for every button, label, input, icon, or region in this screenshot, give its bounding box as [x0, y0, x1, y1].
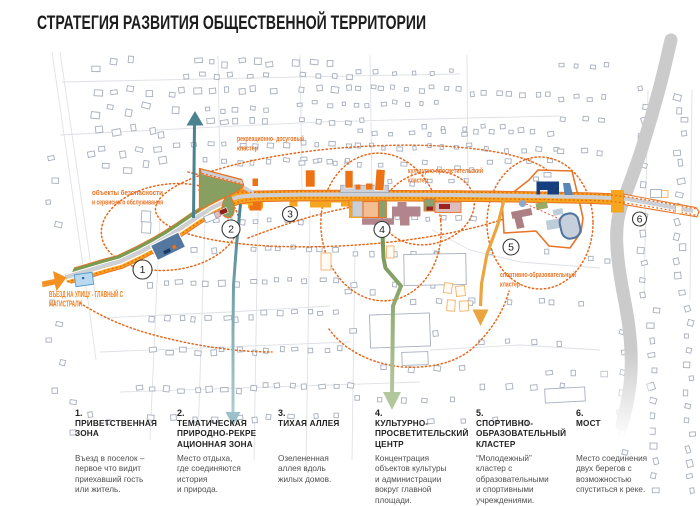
svg-text:1: 1 [140, 264, 146, 276]
svg-text:2: 2 [228, 223, 234, 235]
svg-text:ВЪЕЗД НА УЛИЦУ - ГЛАВНЫЙ С: ВЪЕЗД НА УЛИЦУ - ГЛАВНЫЙ С [49, 288, 123, 299]
svg-text:объекты безопасности: объекты безопасности [92, 188, 163, 197]
svg-text:МАГИСТРАЛИ: МАГИСТРАЛИ [49, 300, 82, 309]
svg-text:5: 5 [508, 241, 514, 253]
svg-text:кластер: кластер [408, 176, 428, 185]
svg-text:кластер: кластер [500, 280, 520, 289]
svg-text:6: 6 [637, 213, 643, 225]
svg-text:культурно-просветительский: культурно-просветительский [408, 166, 483, 175]
svg-text:4: 4 [379, 224, 385, 236]
svg-text:3: 3 [287, 208, 293, 220]
svg-text:спортивно-образовательный: спортивно-образовательный [500, 270, 576, 279]
svg-text:рекреационно- досуговый: рекреационно- досуговый [237, 134, 304, 143]
svg-text:кластер: кластер [237, 144, 258, 153]
svg-text:и сервисного обслуживания: и сервисного обслуживания [92, 198, 163, 207]
